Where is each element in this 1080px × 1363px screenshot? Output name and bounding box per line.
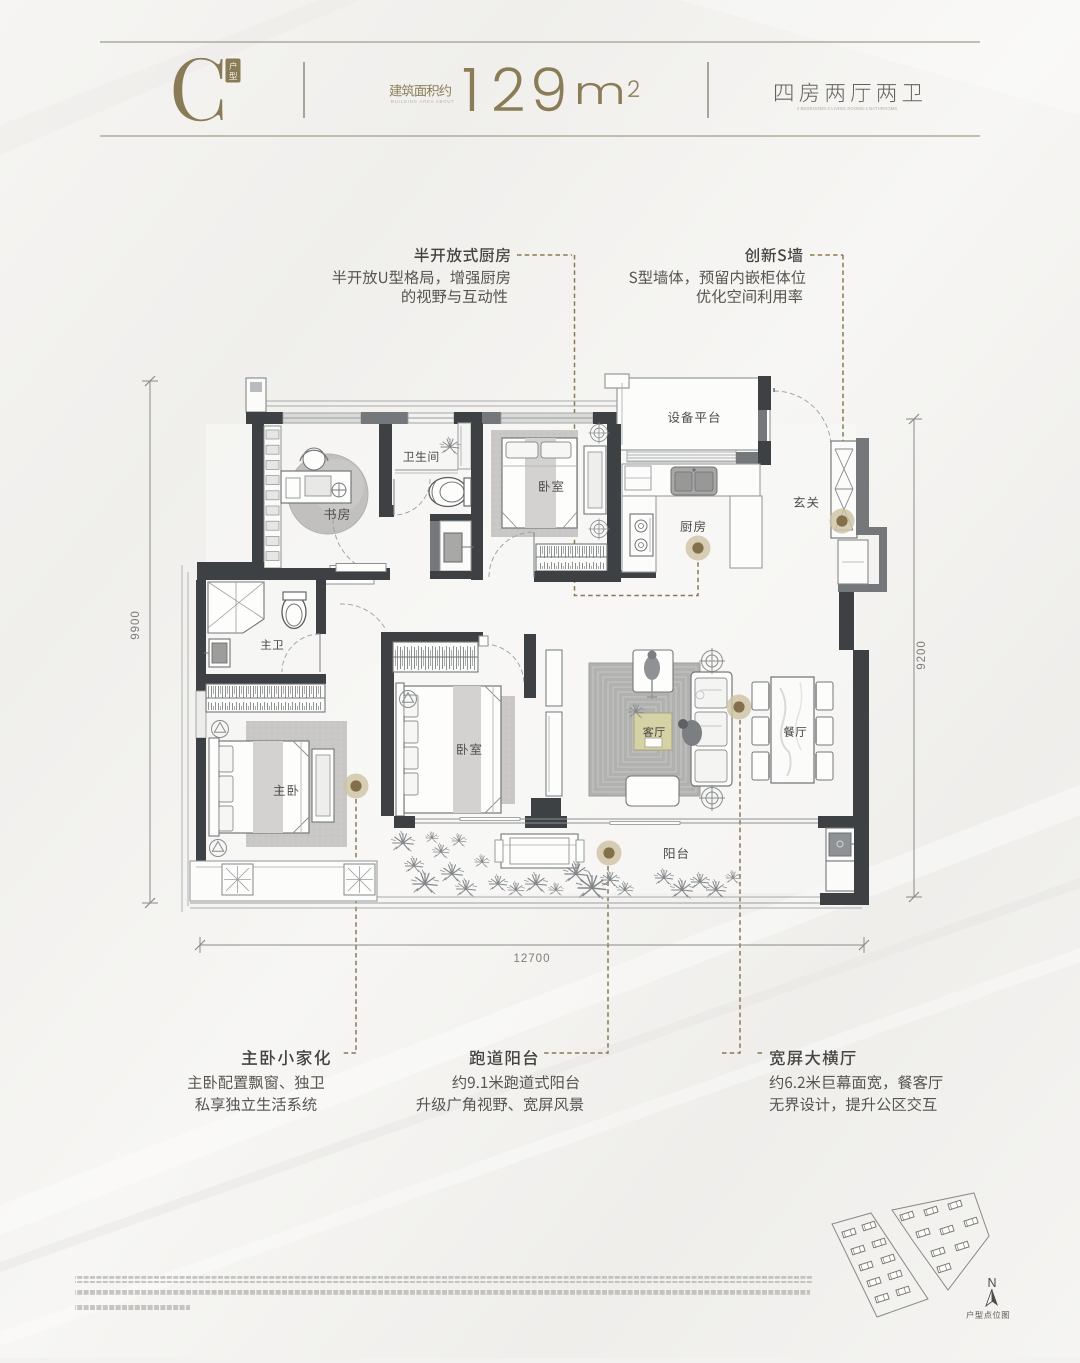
svg-text:N: N [987,1276,996,1290]
svg-text:12700: 12700 [514,953,551,965]
svg-text:4 BEDROOMS-2 LIVING ROOMS-2 BA: 4 BEDROOMS-2 LIVING ROOMS-2 BATHROOMS [797,106,898,111]
svg-text:BUILDING AREA ABOUT: BUILDING AREA ABOUT [391,99,455,104]
svg-text:9200: 9200 [916,640,928,670]
svg-text:9900: 9900 [130,610,142,640]
